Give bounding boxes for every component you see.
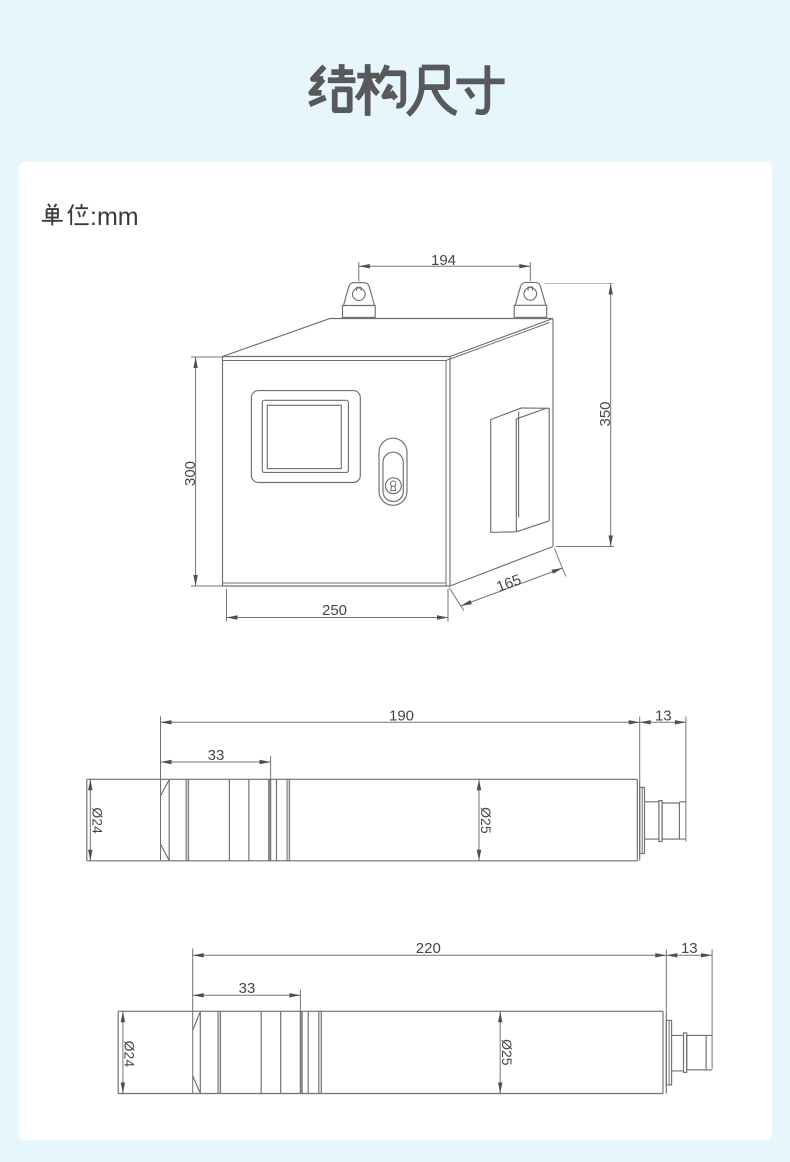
svg-text:250: 250 [322, 602, 347, 619]
svg-text:350: 350 [597, 401, 614, 426]
svg-text:165: 165 [494, 571, 523, 596]
svg-text:Ø25: Ø25 [499, 1039, 515, 1066]
svg-text:194: 194 [431, 252, 456, 269]
svg-text:220: 220 [416, 940, 441, 957]
svg-text:Ø25: Ø25 [478, 807, 494, 834]
svg-text:Ø24: Ø24 [89, 807, 105, 834]
svg-text:190: 190 [389, 707, 414, 724]
svg-text:33: 33 [239, 980, 256, 997]
svg-text:300: 300 [182, 461, 199, 486]
svg-text:Ø24: Ø24 [122, 1041, 138, 1068]
svg-text:33: 33 [208, 747, 225, 764]
svg-text:13: 13 [655, 707, 672, 724]
svg-text:13: 13 [681, 940, 698, 957]
